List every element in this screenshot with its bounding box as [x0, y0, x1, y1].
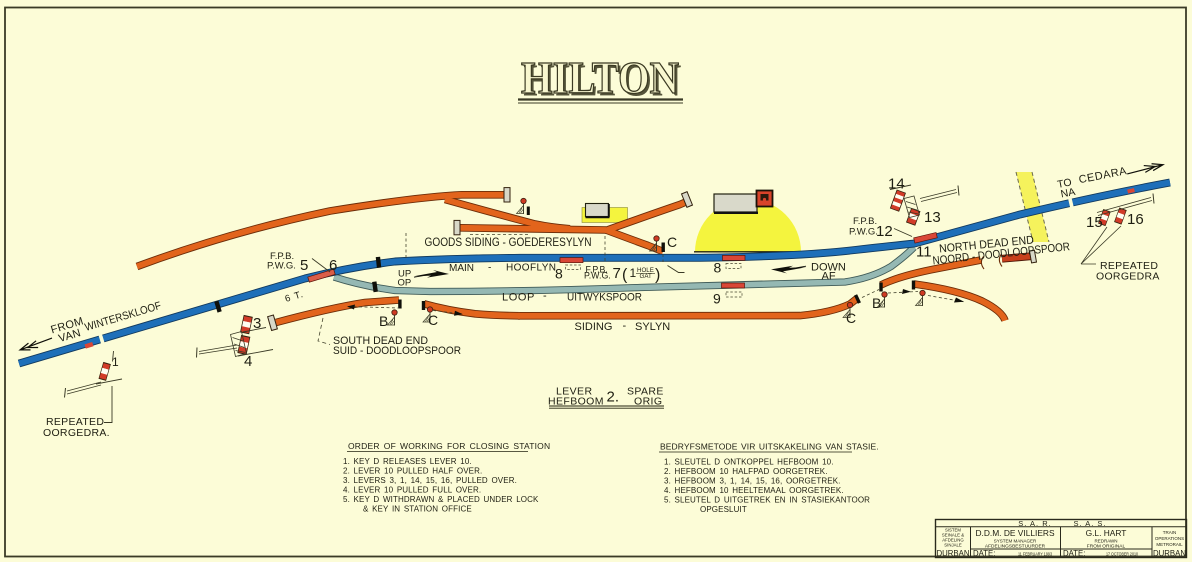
svg-text:OPGESLUIT: OPGESLUIT: [700, 505, 747, 514]
svg-text:8: 8: [714, 260, 722, 276]
svg-text:C: C: [428, 312, 438, 328]
svg-text:13: 13: [924, 209, 941, 226]
svg-text:DATE:: DATE:: [1063, 549, 1085, 558]
svg-text:OP: OP: [398, 278, 412, 289]
svg-text:SUID - DOODLOOPSPOOR: SUID - DOODLOOPSPOOR: [333, 345, 461, 357]
svg-text:2.: 2.: [607, 389, 620, 406]
svg-text:8: 8: [555, 266, 563, 282]
svg-text:ORDER OF WORKING FOR CLOSI: ORDER OF WORKING FOR CLOSING STATION: [348, 441, 550, 451]
svg-text:TRAIN: TRAIN: [1163, 530, 1177, 535]
svg-text:3: 3: [253, 315, 261, 332]
svg-text:DURBAN: DURBAN: [1153, 549, 1186, 558]
svg-text:4. HEFBOOM 10 HEELTEMAAL O: 4. HEFBOOM 10 HEELTEMAAL OORGETREK.: [664, 486, 844, 495]
svg-text:SIDING: SIDING: [575, 321, 613, 333]
svg-text:GOODS SIDING - GOEDERESYLYN: GOODS SIDING - GOEDERESYLYN: [425, 235, 592, 249]
svg-text:HOOFLYN: HOOFLYN: [506, 263, 556, 274]
svg-text:LOOP: LOOP: [502, 292, 535, 304]
svg-text:14: 14: [888, 176, 905, 193]
svg-text:SYSTEM MANAGER: SYSTEM MANAGER: [994, 539, 1037, 544]
svg-text:3. LEVERS 3, 1, 14, 15,: 3. LEVERS 3, 1, 14, 15, 16, PULLED OVER.: [343, 476, 517, 485]
svg-text:3. HEFBOOM 3, 1, 14, 15,: 3. HEFBOOM 3, 1, 14, 15, 16, OORGETREK.: [664, 477, 841, 486]
svg-text:FROM ORIGINAL: FROM ORIGINAL: [1087, 544, 1126, 550]
svg-text:HILTON: HILTON: [521, 52, 679, 103]
svg-text:P.W.G.: P.W.G.: [267, 261, 296, 272]
svg-text:4. LEVER 10 PULLED FULL O: 4. LEVER 10 PULLED FULL OVER.: [343, 486, 481, 495]
svg-text:-: -: [543, 290, 547, 302]
svg-text:S. A. R.: S. A. R.: [1018, 519, 1051, 528]
svg-text:P.W.G.: P.W.G.: [584, 271, 611, 281]
svg-text:B: B: [379, 313, 388, 329]
svg-text:1: 1: [112, 355, 119, 369]
svg-text:-: -: [488, 263, 491, 274]
svg-text:-: -: [623, 320, 627, 332]
svg-text:11: 11: [916, 244, 932, 261]
svg-text:METRORAIL: METRORAIL: [1156, 542, 1183, 547]
svg-text:BEDRYFSMETODE VIR UITSKAKELI: BEDRYFSMETODE VIR UITSKAKELING VAN STASI…: [660, 442, 879, 452]
svg-text:C: C: [667, 234, 677, 250]
svg-text:1. SLEUTEL D ONTKOPPEL HEF: 1. SLEUTEL D ONTKOPPEL HEFBOOM 10.: [664, 458, 834, 467]
svg-text:7: 7: [613, 265, 621, 282]
svg-text:UITWYKSPOOR: UITWYKSPOOR: [567, 292, 642, 304]
svg-text:15: 15: [1086, 214, 1103, 231]
svg-text:AF: AF: [822, 271, 836, 283]
svg-text:F.P.B.: F.P.B.: [853, 216, 877, 227]
svg-text:OORGEDRA: OORGEDRA: [1096, 271, 1160, 283]
svg-text:DURBAN: DURBAN: [937, 549, 970, 558]
svg-text:2. HEFBOOM 10 HALFPAD OORG: 2. HEFBOOM 10 HALFPAD OORGETREK.: [664, 467, 828, 476]
svg-text:SINJALE: SINJALE: [944, 543, 962, 548]
svg-text:2. LEVER 10 PULLED HALF O: 2. LEVER 10 PULLED HALF OVER.: [343, 467, 482, 476]
svg-text:REDRAWN: REDRAWN: [1094, 539, 1117, 544]
svg-text:OORGEDRA.: OORGEDRA.: [43, 427, 110, 439]
svg-text:S. A. S.: S. A. S.: [1073, 519, 1106, 528]
svg-text:P.W.G.: P.W.G.: [849, 227, 878, 238]
svg-text:G.L. HART: G.L. HART: [1086, 528, 1127, 538]
svg-text:5. KEY D WITHDRAWN & PLAC: 5. KEY D WITHDRAWN & PLACED UNDER LOCK: [343, 495, 539, 504]
svg-text:12: 12: [876, 223, 893, 240]
svg-text:OPERATIONS: OPERATIONS: [1155, 536, 1184, 541]
svg-text:5: 5: [300, 257, 308, 274]
svg-text:9: 9: [713, 291, 721, 307]
svg-text:GAT: GAT: [640, 273, 652, 280]
svg-text:16: 16: [1127, 211, 1144, 228]
svg-text:17 OCTOBER 2010: 17 OCTOBER 2010: [1106, 551, 1138, 557]
svg-text:MAIN: MAIN: [449, 263, 474, 274]
svg-text:): ): [655, 267, 660, 284]
svg-text:11 FEBRUARY 1993: 11 FEBRUARY 1993: [1018, 551, 1052, 557]
svg-text:(: (: [622, 267, 628, 284]
svg-text:1. KEY D RELEASES LEVER 1: 1. KEY D RELEASES LEVER 10.: [343, 457, 472, 466]
svg-text:4: 4: [244, 353, 252, 370]
svg-text:& KEY IN STATION OFFICE: & KEY IN STATION OFFICE: [363, 505, 472, 514]
svg-text:C: C: [846, 310, 856, 326]
svg-text:1: 1: [630, 266, 637, 280]
svg-text:SYLYN: SYLYN: [635, 321, 670, 333]
svg-text:6: 6: [329, 257, 337, 274]
svg-text:B: B: [872, 295, 881, 311]
svg-text:5. SLEUTEL D UITGETREK EN: 5. SLEUTEL D UITGETREK EN IN STASIEKANTO…: [664, 496, 870, 505]
svg-text:DATE:: DATE:: [973, 549, 995, 558]
svg-text:D.D.M. DE VILLIERS: D.D.M. DE VILLIERS: [975, 528, 1055, 538]
